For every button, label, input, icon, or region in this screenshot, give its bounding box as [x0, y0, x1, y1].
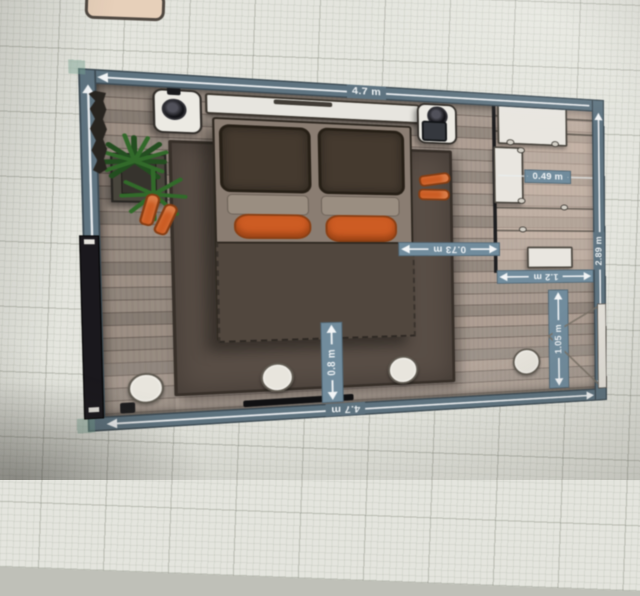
dimension-room-width-bottom: 4.7 m [326, 402, 365, 417]
arrow-down-icon [328, 392, 338, 401]
slippers[interactable] [409, 172, 455, 207]
lamp-icon[interactable] [162, 98, 187, 120]
corner-handle[interactable] [68, 59, 85, 74]
rail-knob [519, 226, 527, 232]
offscreen-furniture[interactable] [85, 0, 166, 21]
dimension-bed-foot-clearance: 0.8 m [320, 322, 343, 403]
dimension-wardrobe-clearance: 0.49 m [524, 169, 571, 184]
arrow-right-icon [489, 245, 497, 253]
door-knob [518, 198, 526, 204]
arrow-right-icon [587, 391, 594, 400]
planner-canvas[interactable]: 0.49 m 0.73 m 1.2 m 0.8 m 1.05 m 4.7 [0, 0, 640, 480]
cabinet-knob [551, 141, 559, 147]
arrow-up-icon [594, 113, 602, 121]
nightstand-right[interactable] [417, 103, 458, 145]
double-bed[interactable] [212, 117, 415, 342]
accent-pillow-right [325, 215, 397, 242]
cabinet-knob [506, 139, 514, 145]
door-knob [517, 147, 525, 153]
slipper [418, 189, 450, 201]
corner-handle[interactable] [77, 418, 95, 434]
wardrobe-cabinet[interactable] [497, 105, 567, 147]
duvet [216, 242, 416, 343]
dimension-room-width-top: 4.7 m [347, 85, 386, 100]
dimension-wardrobe-width: 1.2 m [497, 269, 594, 283]
accent-pillow-left [234, 214, 312, 240]
dimension-passage: 0.73 m [398, 242, 500, 256]
arrow-left-icon [97, 72, 108, 82]
wardrobe-drawer[interactable] [527, 247, 573, 269]
tablet[interactable] [422, 121, 447, 142]
floor-plan[interactable]: 0.49 m 0.73 m 1.2 m 0.8 m 1.05 m 4.7 [78, 68, 607, 432]
rail-knob [560, 204, 568, 210]
wall-fitting [120, 402, 135, 413]
arrow-down-icon [555, 378, 563, 386]
sheet-fold-left [227, 194, 309, 216]
nightstand-left[interactable] [152, 88, 202, 135]
sheet-fold-right [321, 196, 400, 217]
door[interactable] [597, 303, 607, 388]
pillow-right [317, 127, 405, 195]
arrow-right-icon [584, 272, 591, 280]
arrow-left-icon [106, 418, 117, 428]
dimension-room-depth: 2.89 m [593, 232, 605, 270]
headboard-detail [274, 99, 333, 107]
pillow-left [219, 124, 312, 194]
